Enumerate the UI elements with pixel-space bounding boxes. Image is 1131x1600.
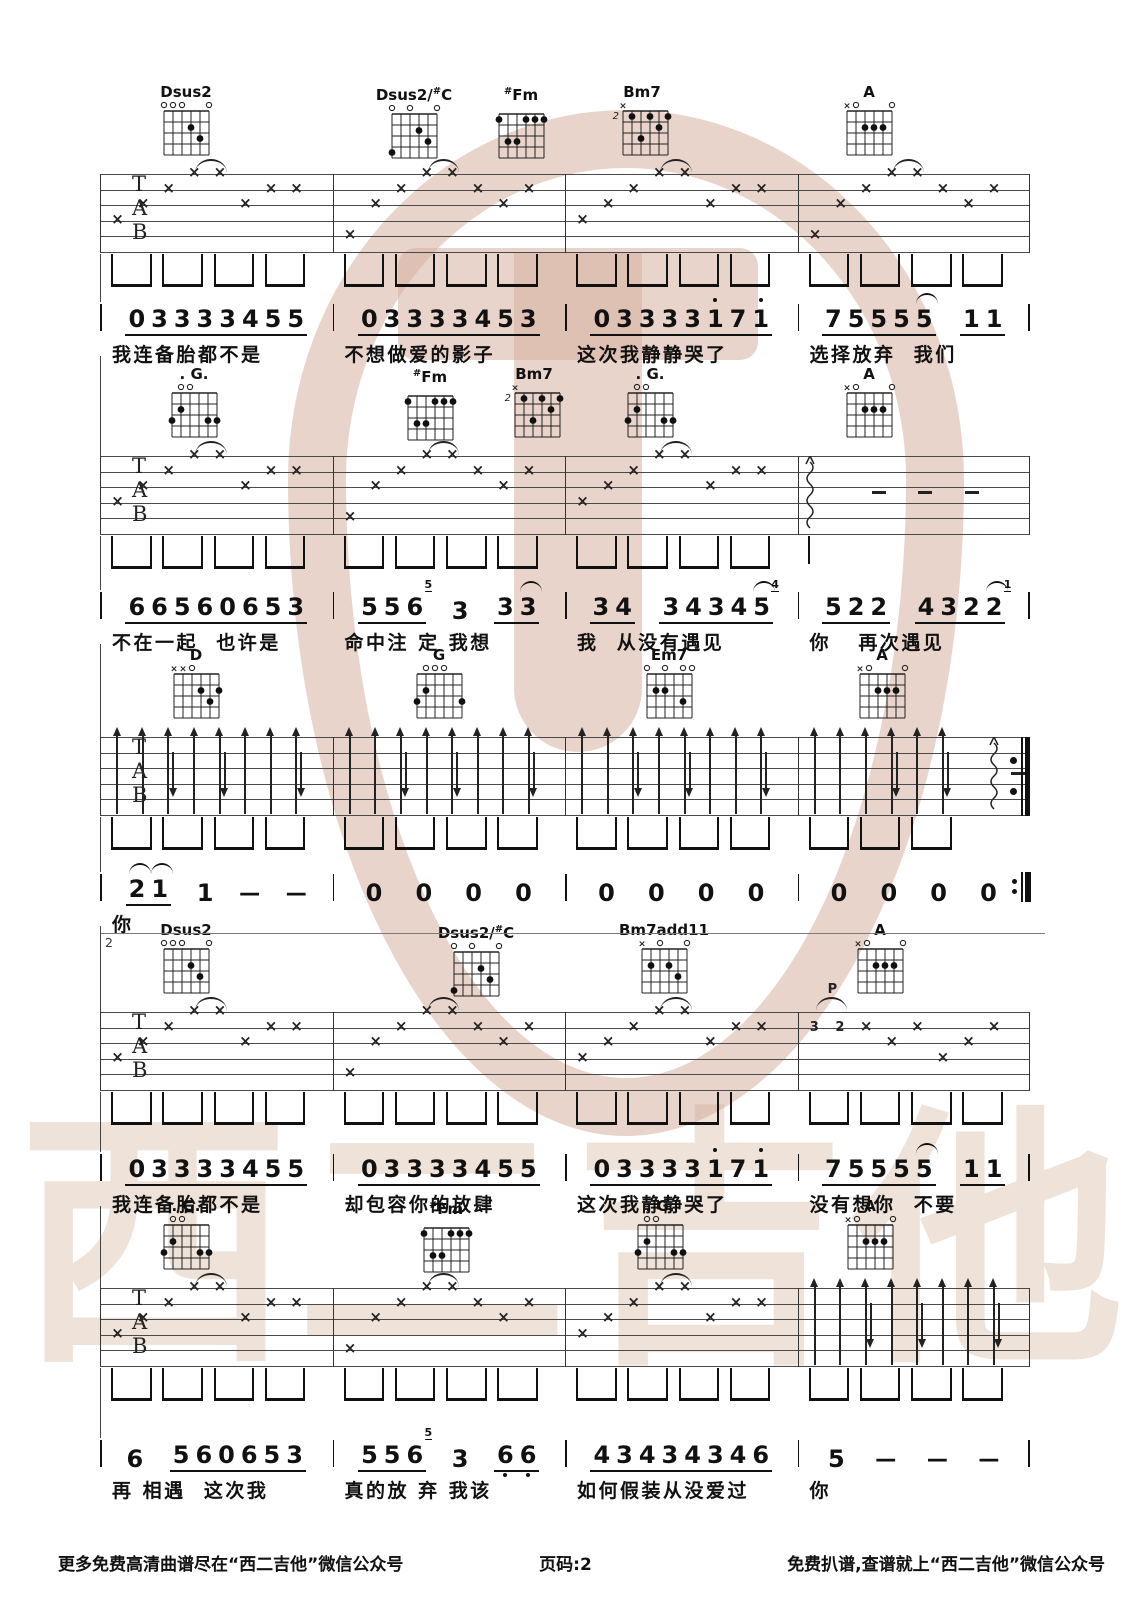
stem-beam xyxy=(576,536,617,569)
x-mark: × xyxy=(472,1295,485,1310)
stem-beam xyxy=(395,817,436,850)
x-mark: × xyxy=(111,494,124,509)
stem-beam xyxy=(962,1368,1003,1401)
jianpu-note: 4 xyxy=(731,594,748,620)
measure-barline xyxy=(565,456,566,535)
measure-barline xyxy=(333,1288,334,1367)
tie-arc xyxy=(151,863,173,874)
system-connector xyxy=(100,1092,101,1153)
measure-barline xyxy=(565,737,566,816)
sheet-page: 西二吉他 TABDsus2Dsus2/#C#FmBm7×2A××××××××××… xyxy=(0,0,1131,1600)
measure-barline xyxy=(100,1288,101,1367)
strum-up-arrow xyxy=(270,734,272,814)
stem-beam xyxy=(860,1368,901,1401)
jianpu-note: 5 xyxy=(174,594,191,620)
stem-beam xyxy=(730,817,771,850)
tie-arc xyxy=(520,581,542,592)
jianpu-note: 5 xyxy=(361,594,378,620)
lyric-line: 如何假装从没爱过 xyxy=(577,1476,749,1503)
chord-grid: × xyxy=(852,663,913,721)
beam-group: 43434346 xyxy=(590,1442,772,1472)
strum-down-arrow xyxy=(921,1303,923,1341)
jianpu-measure: 0000 xyxy=(565,870,798,906)
jianpu-note: 5 xyxy=(361,1442,378,1468)
x-mark: × xyxy=(602,1034,615,1049)
strum-up-arrow xyxy=(477,734,479,814)
svg-text:×: × xyxy=(179,665,187,675)
jianpu-measure: 5565366 xyxy=(333,1436,566,1472)
jianpu-note: 0 xyxy=(930,880,947,906)
chord-grid: × xyxy=(839,100,900,158)
jianpu-note: 5 xyxy=(848,1156,865,1182)
jianpu-note: 3 xyxy=(497,594,514,620)
jianpu-measure: 7555511 xyxy=(798,1150,1031,1186)
stem-beam xyxy=(111,1092,152,1125)
lyric-line: 不在一起 也许是 xyxy=(112,628,281,655)
jianpu-measure: 43434346 xyxy=(565,1436,798,1472)
x-mark: × xyxy=(497,478,510,493)
chord-grid xyxy=(156,938,217,996)
beam-group: 11 xyxy=(960,306,1005,336)
jianpu-note: 3 xyxy=(384,306,401,332)
jianpu-note: 4 xyxy=(685,594,702,620)
beam-group: 11 xyxy=(960,1156,1005,1186)
jianpu-note: 3 xyxy=(452,306,469,332)
jianpu-note: 3 xyxy=(384,1156,401,1182)
jianpu-note: 0 xyxy=(219,594,236,620)
measure-barline xyxy=(333,1012,334,1091)
strum-up-arrow xyxy=(839,734,841,814)
rest-dash xyxy=(1011,772,1025,775)
stem-beam xyxy=(911,254,952,287)
stem-beam xyxy=(627,254,668,287)
jianpu-note: — xyxy=(239,880,260,906)
x-mark: × xyxy=(290,181,303,196)
jianpu-note: 0 xyxy=(361,306,378,332)
jianpu-measure: 52243221 xyxy=(798,588,1031,624)
strum-down-arrow xyxy=(947,752,949,790)
volta-bracket: 2 xyxy=(100,933,1045,934)
jianpu-measure: 6560653 xyxy=(100,1436,333,1472)
tie-arc xyxy=(916,293,938,304)
note-group: — xyxy=(239,880,260,906)
measure-barline xyxy=(798,1288,799,1367)
x-mark: × xyxy=(395,463,408,478)
jianpu-note: 7 xyxy=(730,306,747,332)
note-group: 0 xyxy=(930,880,947,906)
volta-label: 2 xyxy=(105,935,113,950)
jianpu-note: 3 xyxy=(616,306,633,332)
stem-beam xyxy=(860,254,901,287)
stem-beam xyxy=(730,1092,771,1125)
stem-beam xyxy=(446,536,487,569)
stem-beam xyxy=(344,1092,385,1125)
tab-letter: B xyxy=(132,1336,147,1357)
strum-up-arrow xyxy=(295,734,297,814)
note-group: 0 xyxy=(465,880,482,906)
tab-system: TABD××GEm7A× xyxy=(100,737,1030,815)
rest-dash xyxy=(872,491,886,494)
svg-text:2: 2 xyxy=(612,111,618,122)
jianpu-note: 3 xyxy=(639,1156,656,1182)
strum-up-arrow xyxy=(865,734,867,814)
strum-up-arrow xyxy=(709,734,711,814)
strum-up-arrow xyxy=(993,1285,995,1365)
grace-note: 1 xyxy=(1004,579,1012,592)
beam-group: 03333455 xyxy=(125,306,307,336)
x-mark: × xyxy=(395,181,408,196)
jianpu-note: — xyxy=(978,1446,999,1472)
x-mark: × xyxy=(860,181,873,196)
strum-down-arrow xyxy=(300,752,302,790)
x-mark: × xyxy=(937,1050,950,1065)
octave-dot-high xyxy=(759,298,763,302)
jianpu-note: 3 xyxy=(174,1156,191,1182)
jianpu-note: 6 xyxy=(752,1442,769,1468)
tie-arc xyxy=(660,441,692,455)
jianpu-note: 3 xyxy=(708,594,725,620)
system-connector xyxy=(100,1368,101,1439)
jianpu-note: 5 xyxy=(870,306,887,332)
jianpu-note: 6 xyxy=(127,1446,144,1472)
chord-diagram: #Fm xyxy=(384,366,476,443)
jianpu-row: 66560653不在一起 也许是5565333命中注 定 我想34343454我… xyxy=(100,588,1030,658)
stem-beam xyxy=(627,1368,668,1401)
measure-barline xyxy=(333,456,334,535)
chord-diagram: Bm7×2 xyxy=(488,366,580,440)
stem-beam xyxy=(214,254,255,287)
jianpu-note: 5 xyxy=(893,1156,910,1182)
x-mark: × xyxy=(627,1295,640,1310)
measure-barline xyxy=(333,174,334,253)
lyric-line: 命中注 定 我想 xyxy=(345,628,492,655)
svg-text:×: × xyxy=(843,384,851,394)
x-mark: × xyxy=(704,478,717,493)
stem-beam xyxy=(446,254,487,287)
strum-up-arrow xyxy=(658,734,660,814)
strum-up-arrow xyxy=(528,734,530,814)
tie-arc xyxy=(660,1273,692,1287)
x-mark: × xyxy=(730,463,743,478)
strum-down-arrow xyxy=(998,1303,1000,1341)
strum-up-arrow xyxy=(916,734,918,814)
jianpu-note: 0 xyxy=(361,1156,378,1182)
stem-beam xyxy=(730,1368,771,1401)
stem-beam xyxy=(576,817,617,850)
lyric-line: 再 相遇 这次我 xyxy=(112,1476,268,1503)
tie-arc xyxy=(660,159,692,173)
jianpu-note: 7 xyxy=(825,1156,842,1182)
jianpu-note: 0 xyxy=(366,880,383,906)
stem-beam xyxy=(911,1368,952,1401)
jianpu-note: 6 xyxy=(195,1442,212,1468)
strum-down-arrow xyxy=(405,752,407,790)
stem-beam xyxy=(344,536,385,569)
jianpu-note: — xyxy=(875,1446,896,1472)
tie-arc xyxy=(195,1273,227,1287)
pulloff-label: P xyxy=(828,982,838,997)
x-mark: × xyxy=(962,196,975,211)
x-mark: × xyxy=(730,1295,743,1310)
beam-group: 66560653 xyxy=(125,594,307,624)
jianpu-note: 21 xyxy=(986,594,1003,620)
strum-down-arrow xyxy=(533,752,535,790)
grace-note: 5 xyxy=(425,1427,433,1440)
beam-group: 34 xyxy=(590,594,635,624)
stem-beam xyxy=(860,817,901,850)
chord-grid: × xyxy=(840,1214,901,1272)
x-mark: × xyxy=(988,181,1001,196)
jianpu-note: 65 xyxy=(406,594,423,620)
stem-beam xyxy=(111,254,152,287)
jianpu-note: 6 xyxy=(241,1442,258,1468)
stem-beam xyxy=(111,536,152,569)
strum-up-arrow xyxy=(400,734,402,814)
jianpu-note: 6 xyxy=(197,594,214,620)
jianpu-note: 0 xyxy=(648,880,665,906)
strum-up-arrow xyxy=(814,1285,816,1365)
stem-beam xyxy=(497,1092,538,1125)
stem-beam xyxy=(111,817,152,850)
x-mark: × xyxy=(704,1310,717,1325)
rest-dash xyxy=(965,491,979,494)
rest-dash xyxy=(918,491,932,494)
beam-group: 5565 xyxy=(358,1442,426,1472)
jianpu-note: 2 xyxy=(870,594,887,620)
x-mark: × xyxy=(162,1019,175,1034)
grace-note: 5 xyxy=(425,579,433,592)
lyric-line: 这次我静静哭了 xyxy=(577,340,728,367)
note-group: 0 xyxy=(980,880,997,906)
note-group: 0 xyxy=(515,880,532,906)
stem-beam xyxy=(162,536,203,569)
jianpu-note: 0 xyxy=(748,880,765,906)
jianpu-note: 0 xyxy=(515,880,532,906)
jianpu-note: 5 xyxy=(265,306,282,332)
stem-beam xyxy=(911,1092,952,1125)
chord-grid xyxy=(384,103,445,161)
jianpu-measure: 211—— xyxy=(100,870,333,906)
x-mark: × xyxy=(290,1019,303,1034)
x-mark: × xyxy=(111,1326,124,1341)
jianpu-note: 1 xyxy=(963,306,980,332)
jianpu-note: 6 xyxy=(128,594,145,620)
strum-up-arrow xyxy=(891,734,893,814)
jianpu-note: 5 xyxy=(497,1156,514,1182)
jianpu-note: 3 xyxy=(684,1156,701,1182)
stem-beam xyxy=(446,817,487,850)
beam-group: 66 xyxy=(494,1442,539,1472)
jianpu-note: 5 xyxy=(828,1446,845,1472)
stem-beam xyxy=(627,817,668,850)
jianpu-note: 5 xyxy=(173,1442,190,1468)
x-mark: × xyxy=(344,509,357,524)
jianpu-note: — xyxy=(927,1446,948,1472)
note-group: 0 xyxy=(648,880,665,906)
jianpu-note: 5 xyxy=(520,1156,537,1182)
stem-beam xyxy=(809,1368,850,1401)
jianpu-measure: 0000 xyxy=(798,870,1031,906)
chord-grid xyxy=(446,941,507,999)
x-mark: × xyxy=(395,1019,408,1034)
jianpu-note: 2 xyxy=(963,594,980,620)
jianpu-measure: 03333455 xyxy=(100,300,333,336)
note-group: 0 xyxy=(831,880,848,906)
chord-grid: × xyxy=(839,382,900,440)
jianpu-note: 3 xyxy=(707,1442,724,1468)
lyric-line: 你 再次遇见 xyxy=(810,628,945,655)
jianpu-note: 5 xyxy=(265,1156,282,1182)
strum-up-arrow xyxy=(502,734,504,814)
chord-diagram: . G. xyxy=(148,366,240,440)
measure-barline xyxy=(565,1288,566,1367)
stem-beam xyxy=(679,1092,720,1125)
footer-right: 免费扒谱,查谱就上“西二吉他”微信公众号 xyxy=(787,1550,1105,1575)
jianpu-note: 5 xyxy=(893,306,910,332)
jianpu-measure: 03333171 xyxy=(565,300,798,336)
page-number: 页码:2 xyxy=(539,1550,592,1575)
x-mark: × xyxy=(111,1050,124,1065)
strum-down-arrow xyxy=(637,752,639,790)
octave-dot-high xyxy=(713,298,717,302)
system-connector xyxy=(100,254,101,303)
x-mark: × xyxy=(576,212,589,227)
stem-beam xyxy=(679,254,720,287)
x-mark: × xyxy=(162,181,175,196)
stem-beam xyxy=(214,1092,255,1125)
strum-up-arrow xyxy=(967,1285,969,1365)
beam-group: 522 xyxy=(822,594,890,624)
chord-grid xyxy=(409,663,470,721)
x-mark: × xyxy=(395,1295,408,1310)
jianpu-note: 4 xyxy=(639,1442,656,1468)
jianpu-note: 4 xyxy=(615,594,632,620)
measure-barline xyxy=(1029,174,1030,253)
svg-text:×: × xyxy=(638,940,646,950)
strum-up-arrow xyxy=(760,734,762,814)
jianpu-note: 1 xyxy=(986,306,1003,332)
strum-up-arrow xyxy=(684,734,686,814)
tab-system: TAB. G.#Fm. G.A××××××××××××××××××××××××× xyxy=(100,1288,1030,1366)
note-group: — xyxy=(978,1446,999,1472)
jianpu-note: 5 xyxy=(265,594,282,620)
lyric-line: 没有想你 不要 xyxy=(810,1190,957,1217)
strum-up-arrow xyxy=(193,734,195,814)
stem-beam xyxy=(962,1092,1003,1125)
repeat-dot xyxy=(1010,757,1017,764)
chord-grid xyxy=(156,1214,217,1272)
jianpu-note: 5 xyxy=(287,306,304,332)
svg-text:×: × xyxy=(856,665,864,675)
stem-beam xyxy=(265,1368,306,1401)
chord-grid xyxy=(491,103,552,161)
jianpu-note: 3 xyxy=(616,1442,633,1468)
sharp-sign: # xyxy=(504,86,512,97)
stem-beam xyxy=(576,1368,617,1401)
tab-letter: T xyxy=(132,174,146,195)
x-mark: × xyxy=(344,1065,357,1080)
jianpu-note: 3 xyxy=(520,594,537,620)
strum-up-arrow xyxy=(581,734,583,814)
measure-barline xyxy=(1029,456,1030,535)
chord-grid xyxy=(400,385,461,443)
jianpu-note: 3 xyxy=(452,1446,469,1472)
x-mark: × xyxy=(576,1326,589,1341)
x-mark: × xyxy=(344,1341,357,1356)
beam-group: 75555 xyxy=(822,1156,936,1186)
note-group: 0 xyxy=(366,880,383,906)
svg-text:2: 2 xyxy=(504,393,510,404)
jianpu-note: 5 xyxy=(870,1156,887,1182)
measure-barline xyxy=(798,1012,799,1091)
jianpu-note: 6 xyxy=(242,594,259,620)
x-mark: × xyxy=(369,196,382,211)
strum-up-arrow xyxy=(735,734,737,814)
jianpu-note: 4 xyxy=(242,306,259,332)
x-mark: × xyxy=(369,1034,382,1049)
measure-barline xyxy=(565,174,566,253)
stem-beam xyxy=(214,536,255,569)
grace-note: 4 xyxy=(771,579,779,592)
beam-group: 33 xyxy=(494,594,539,624)
measure-barline xyxy=(100,737,101,816)
strum-up-arrow xyxy=(167,734,169,814)
system-connector xyxy=(100,356,101,456)
stem-beam xyxy=(395,1368,436,1401)
measure-barline xyxy=(333,737,334,816)
chord-diagram: Dsus2 xyxy=(140,84,232,158)
system-connector xyxy=(100,536,101,591)
jianpu-measure: 0000 xyxy=(333,870,566,906)
note-group: 0 xyxy=(748,880,765,906)
measure-barline xyxy=(565,1012,566,1091)
note-group: 5 xyxy=(828,1446,845,1472)
jianpu-note: 3 xyxy=(452,1156,469,1182)
strum-down-arrow xyxy=(172,752,174,790)
tab-system: TABDsus2Dsus2/#CBm7add11×A××××××××××××××… xyxy=(100,1012,1030,1090)
stem-beam xyxy=(162,254,203,287)
stem-beam xyxy=(395,254,436,287)
beam-group: 75555 xyxy=(822,306,936,336)
x-mark: × xyxy=(162,1295,175,1310)
svg-text:×: × xyxy=(843,102,851,112)
strum-up-arrow xyxy=(632,734,634,814)
x-mark: × xyxy=(730,1019,743,1034)
stem-beam xyxy=(162,1092,203,1125)
jianpu-note: 0 xyxy=(218,1442,235,1468)
strum-up-arrow xyxy=(451,734,453,814)
tab-letter: T xyxy=(132,456,146,477)
measure-barline xyxy=(100,174,101,253)
chord-grid xyxy=(156,100,217,158)
jianpu-note: 0 xyxy=(465,880,482,906)
stem-beam xyxy=(265,817,306,850)
jianpu-note: 3 xyxy=(286,1442,303,1468)
x-mark: × xyxy=(602,1310,615,1325)
jianpu-measure: 5——— xyxy=(798,1436,1031,1472)
stem-beam xyxy=(679,817,720,850)
chord-diagram: Em7 xyxy=(623,647,715,721)
jianpu-note: 3 xyxy=(406,306,423,332)
jianpu-note: 5 xyxy=(264,1442,281,1468)
jianpu-note: 3 xyxy=(174,306,191,332)
chord-grid xyxy=(164,382,225,440)
chord-label: Dsus2 xyxy=(140,84,232,100)
jianpu-note: — xyxy=(286,880,307,906)
jianpu-measure: 03333453 xyxy=(333,300,566,336)
jianpu-note: 5 xyxy=(848,306,865,332)
jianpu-note: 5 xyxy=(287,1156,304,1182)
